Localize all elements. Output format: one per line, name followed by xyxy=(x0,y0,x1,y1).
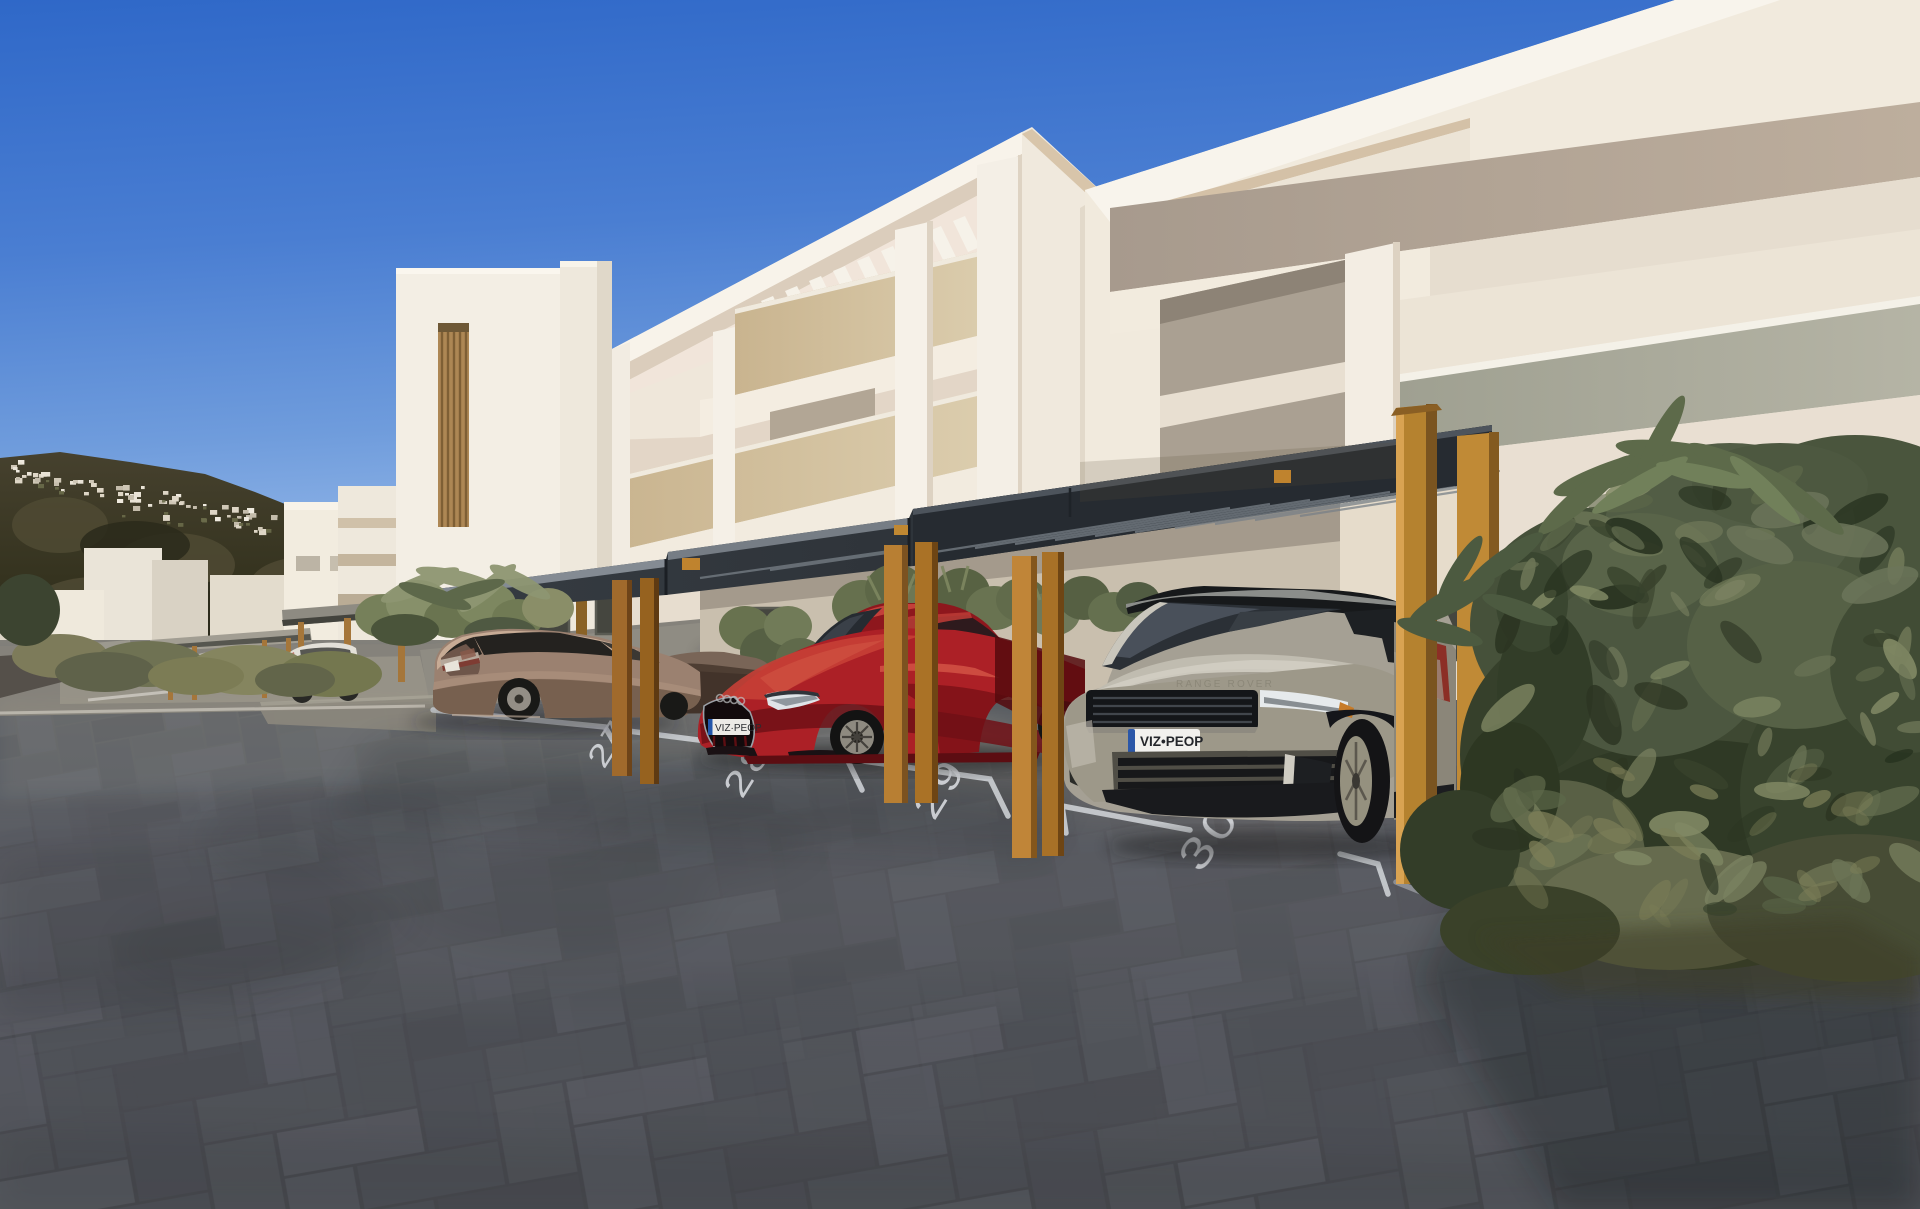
svg-text:RANGE ROVER: RANGE ROVER xyxy=(1176,679,1274,690)
svg-text:VIZ•PEOP: VIZ•PEOP xyxy=(1140,734,1203,749)
svg-text:VIZ·PEOP: VIZ·PEOP xyxy=(715,723,762,734)
